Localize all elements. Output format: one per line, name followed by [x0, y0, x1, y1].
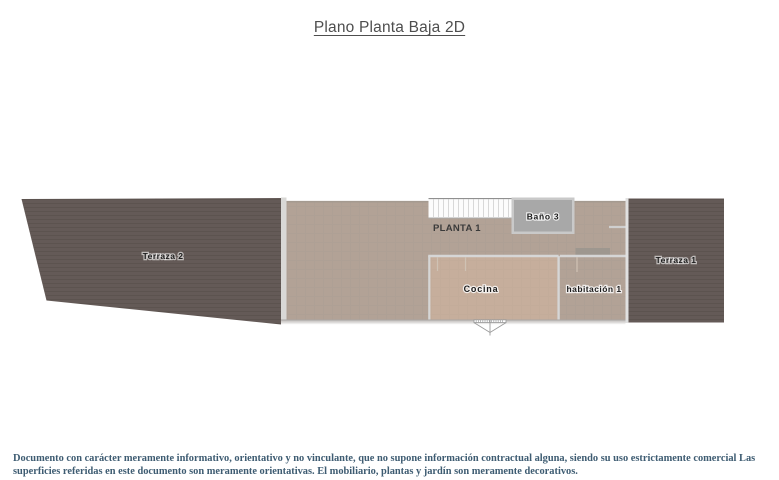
- svg-text:habitación 1: habitación 1: [567, 284, 622, 294]
- svg-text:Terraza 1: Terraza 1: [656, 255, 697, 265]
- svg-text:PLANTA 1: PLANTA 1: [433, 223, 481, 234]
- svg-text:Cocina: Cocina: [464, 284, 499, 294]
- svg-text:Terraza 2: Terraza 2: [143, 251, 184, 261]
- svg-text:Baño 3: Baño 3: [527, 212, 560, 222]
